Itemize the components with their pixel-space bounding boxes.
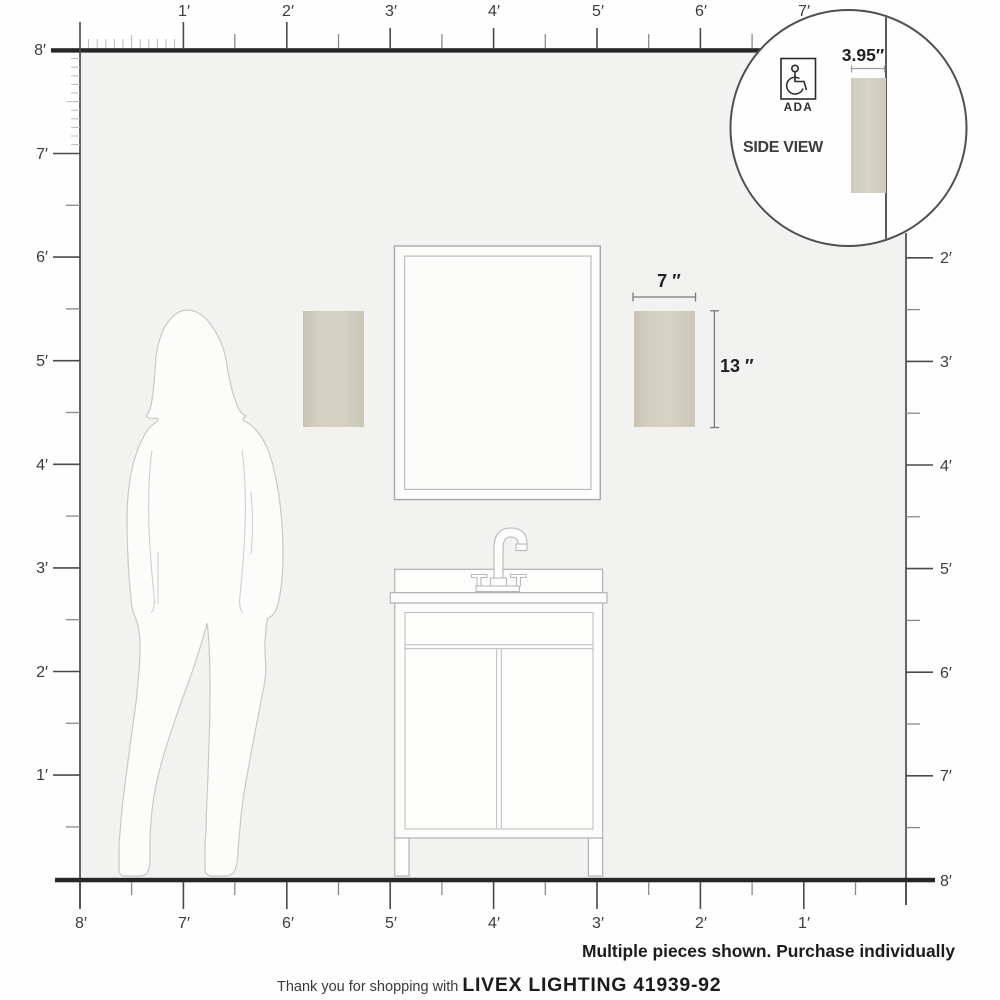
svg-text:Multiple pieces shown. Purchas: Multiple pieces shown. Purchase individu… bbox=[582, 941, 955, 961]
svg-text:ADA: ADA bbox=[784, 102, 813, 114]
svg-text:2′: 2′ bbox=[695, 915, 707, 932]
svg-text:6′: 6′ bbox=[36, 249, 48, 266]
svg-text:6′: 6′ bbox=[940, 665, 952, 682]
svg-text:3′: 3′ bbox=[940, 354, 952, 371]
svg-text:2′: 2′ bbox=[940, 250, 952, 267]
svg-text:4′: 4′ bbox=[940, 458, 952, 475]
svg-text:7 ″: 7 ″ bbox=[657, 271, 681, 291]
svg-text:2′: 2′ bbox=[282, 3, 294, 20]
svg-text:1′: 1′ bbox=[178, 3, 190, 20]
svg-text:1′: 1′ bbox=[798, 915, 810, 932]
svg-text:5′: 5′ bbox=[940, 561, 952, 578]
svg-text:1′: 1′ bbox=[36, 767, 48, 784]
svg-text:7′: 7′ bbox=[178, 915, 190, 932]
svg-text:SIDE VIEW: SIDE VIEW bbox=[743, 139, 824, 156]
svg-text:4′: 4′ bbox=[488, 3, 500, 20]
svg-text:3′: 3′ bbox=[592, 915, 604, 932]
svg-text:5′: 5′ bbox=[592, 3, 604, 20]
svg-text:3.95″: 3.95″ bbox=[842, 45, 885, 65]
svg-text:8′: 8′ bbox=[75, 915, 87, 932]
svg-text:3′: 3′ bbox=[385, 3, 397, 20]
svg-text:6′: 6′ bbox=[282, 915, 294, 932]
svg-text:5′: 5′ bbox=[385, 915, 397, 932]
svg-text:6′: 6′ bbox=[695, 3, 707, 20]
svg-text:8′: 8′ bbox=[940, 873, 952, 890]
svg-text:8′: 8′ bbox=[34, 42, 46, 59]
svg-text:3′: 3′ bbox=[36, 560, 48, 577]
svg-text:5′: 5′ bbox=[36, 353, 48, 370]
svg-text:Thank you for shopping with LI: Thank you for shopping with LIVEX LIGHTI… bbox=[277, 974, 721, 996]
svg-text:2′: 2′ bbox=[36, 664, 48, 681]
svg-text:7′: 7′ bbox=[36, 146, 48, 163]
svg-text:4′: 4′ bbox=[488, 915, 500, 932]
svg-text:13 ″: 13 ″ bbox=[720, 356, 754, 376]
svg-text:4′: 4′ bbox=[36, 457, 48, 474]
svg-text:7′: 7′ bbox=[940, 768, 952, 785]
